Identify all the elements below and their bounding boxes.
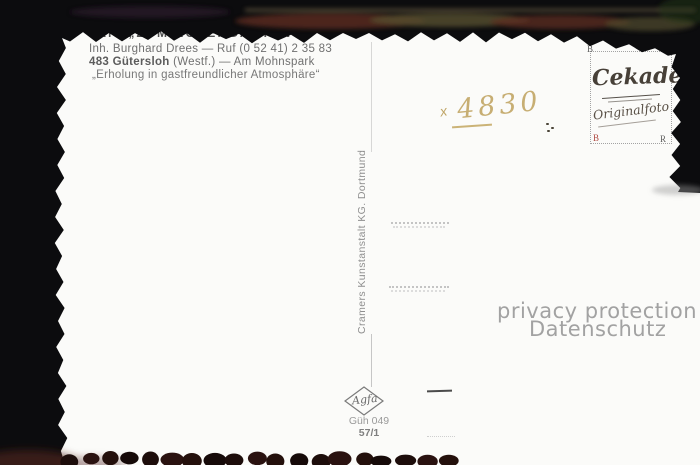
pen-dash-mark [427,390,452,393]
stamp-corner-bl: B [593,133,599,143]
address-dotted-line-shadow [391,290,445,292]
ink-speck [546,123,549,125]
stamp-corner-br: R [660,134,666,144]
publisher-owner-line: Inh. Burghard Drees — Ruf (0 52 41) 2 35… [89,43,332,55]
privacy-watermark-line2: Datenschutz [529,317,666,341]
postcard-scan: Café „ZUM ROSENGARTEN“ Inh. Burghard Dre… [0,0,700,465]
handwritten-number: 4830 [456,86,543,126]
ink-speck [547,130,550,132]
stamp-corner-tl: B [587,44,593,54]
agfa-label: Agfa [351,392,378,408]
address-dotted-line-shadow [393,226,445,228]
address-dotted-line-small [427,436,455,437]
handwritten-x-mark: x [439,103,449,120]
publisher-slogan: „Erholung in gastfreundlicher Atmosphäre… [92,69,320,81]
publisher-address-line: 483 Gütersloh (Westf.) — Am Mohnspark [89,56,315,68]
printer-imprint: Cramers Kunstanstalt KG. Dortmund [356,144,368,334]
print-code: Güh 049 [336,415,402,427]
divider-line-upper [371,42,372,152]
stamp-corner-tr: B [664,43,670,53]
publisher-title: Café „ZUM ROSENGARTEN“ [88,26,300,40]
divider-line-lower [371,334,372,387]
cekade-brand-logo: Cekade [592,63,673,92]
address-rest: (Westf.) — Am Mohnspark [170,56,315,68]
address-dotted-line [389,286,449,288]
postal-city: 483 Gütersloh [89,56,170,68]
ink-speck [551,127,554,129]
agfa-diamond-logo: Agfa [344,386,384,416]
address-dotted-line [391,222,449,224]
edition-code: 57/1 [336,427,402,439]
